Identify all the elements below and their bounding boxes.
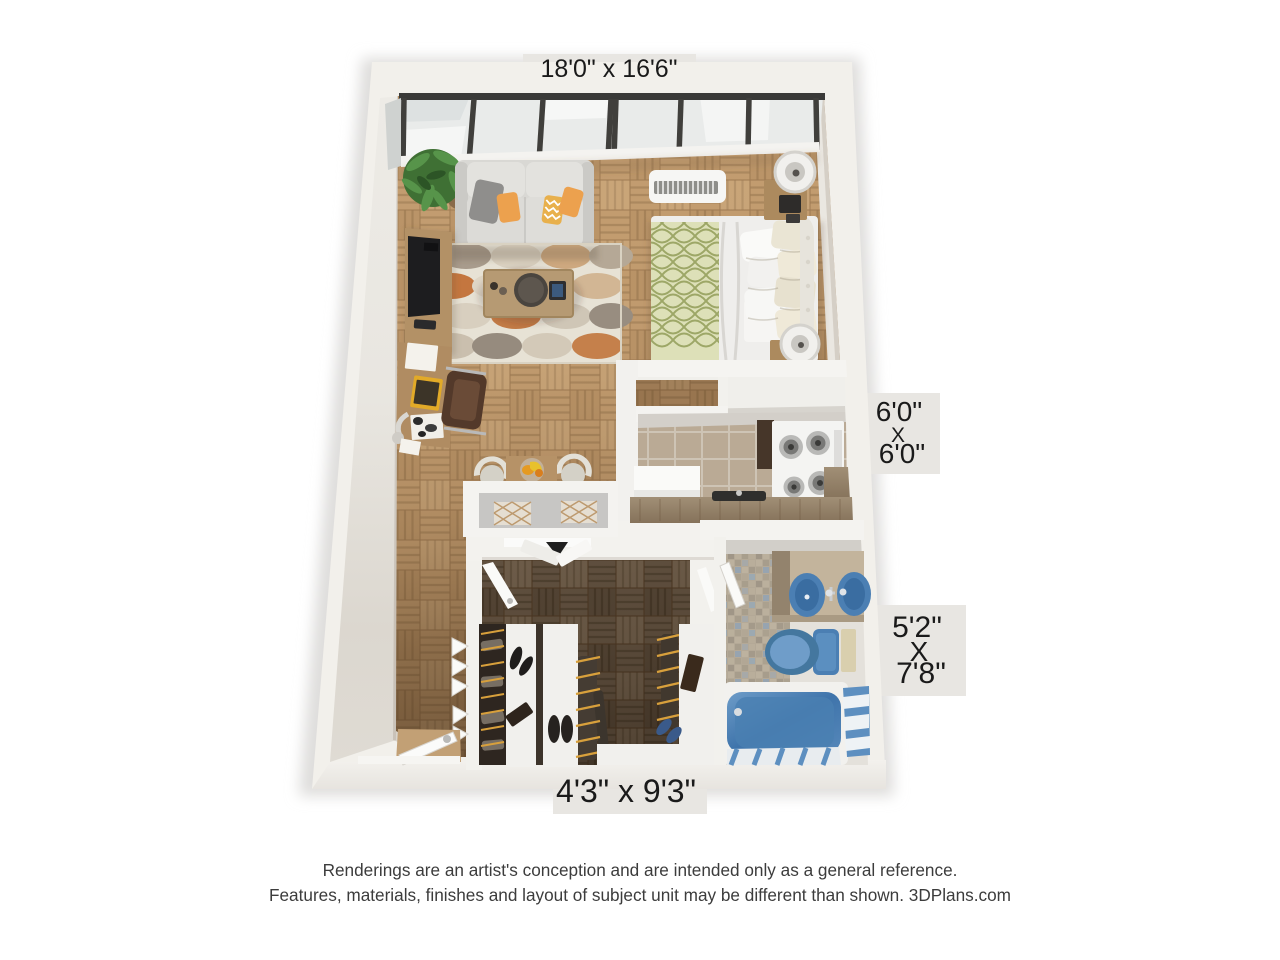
svg-text:6'0": 6'0" — [879, 438, 925, 469]
svg-text:4'3" x 9'3": 4'3" x 9'3" — [556, 773, 696, 809]
svg-text:18'0" x 16'6": 18'0" x 16'6" — [540, 55, 677, 83]
svg-text:Renderings are an artist's con: Renderings are an artist's conception an… — [323, 860, 958, 880]
svg-text:7'8": 7'8" — [896, 657, 946, 690]
svg-text:Features, materials, finishes: Features, materials, finishes and layout… — [269, 885, 1011, 905]
svg-text:6'0": 6'0" — [876, 396, 922, 427]
